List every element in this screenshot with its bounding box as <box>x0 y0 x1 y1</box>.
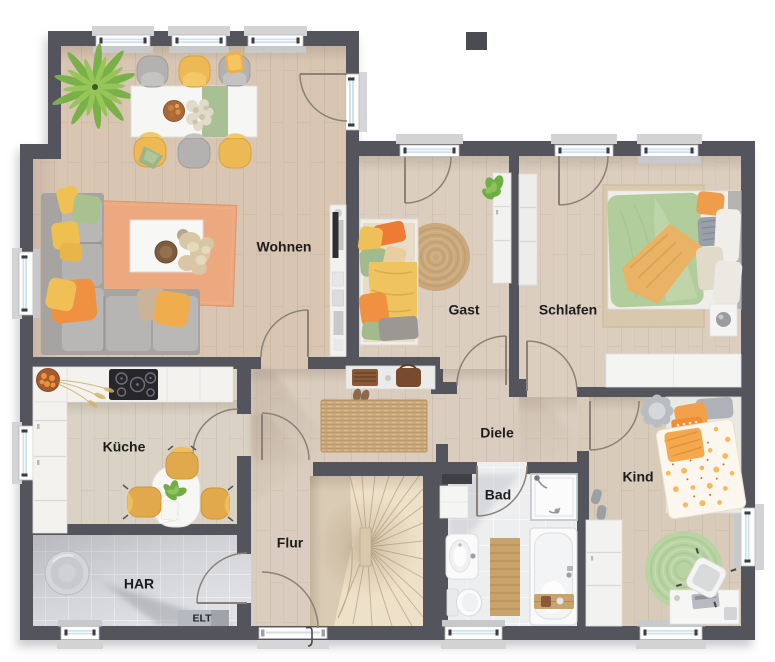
svg-text:Schlafen: Schlafen <box>539 302 597 318</box>
svg-text:Flur: Flur <box>277 535 304 551</box>
svg-text:HAR: HAR <box>124 576 154 592</box>
svg-text:Kind: Kind <box>622 469 653 485</box>
svg-text:Bad: Bad <box>485 487 511 503</box>
svg-text:Küche: Küche <box>103 439 146 455</box>
svg-text:Gast: Gast <box>448 302 479 318</box>
svg-text:ELT: ELT <box>192 613 212 625</box>
svg-text:Wohnen: Wohnen <box>257 239 312 255</box>
svg-text:Diele: Diele <box>480 425 514 441</box>
